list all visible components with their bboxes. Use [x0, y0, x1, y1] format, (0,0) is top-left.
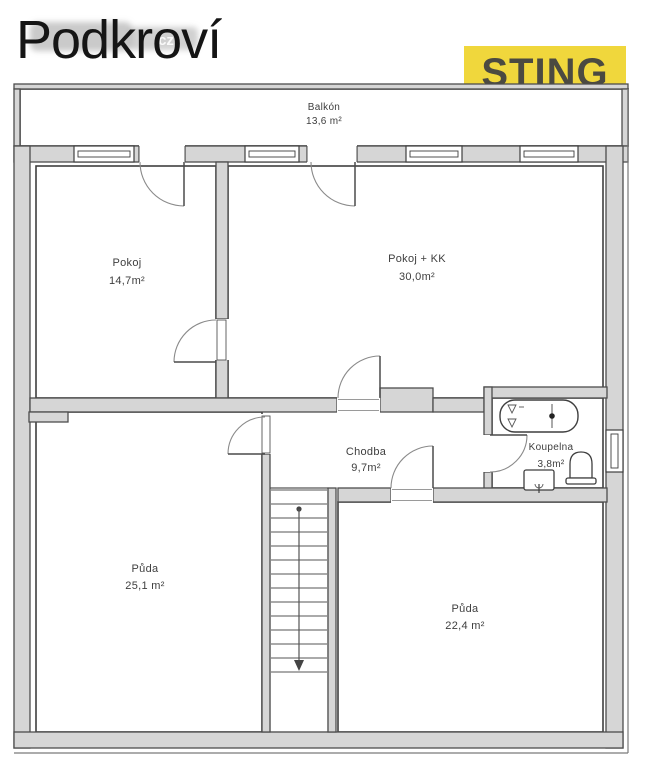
- floorplan-page: cz Podkroví STING: [0, 0, 650, 768]
- page-title: Podkroví: [16, 10, 222, 70]
- label-puda-right-name: Půda: [452, 603, 479, 615]
- wall-pokoj-divider: [216, 162, 228, 319]
- label-puda-left-name: Půda: [132, 563, 159, 575]
- label-pokoj-area: 14,7m²: [109, 275, 145, 287]
- label-balcony-name: Balkón: [308, 102, 340, 113]
- label-puda-right-area: 22,4 m²: [445, 620, 484, 632]
- wall-left: [14, 146, 30, 748]
- wall-bottom: [14, 732, 623, 748]
- wall-balcony-right: [622, 89, 628, 146]
- wall-mid-horizontal: [433, 398, 484, 412]
- door-frame: [262, 416, 270, 453]
- wall-koupelna-left: [484, 387, 492, 435]
- wall-balcony-left: [14, 89, 20, 146]
- wall-koupelna-top: [484, 387, 607, 398]
- opening: [307, 145, 357, 163]
- label-pokoj-name: Pokoj: [112, 257, 141, 269]
- room-puda-right: [338, 502, 603, 732]
- wall-mid-horizontal: [30, 398, 337, 412]
- wall-pokoj-divider: [216, 359, 228, 398]
- window: [520, 146, 578, 162]
- wall-chunk: [380, 388, 433, 412]
- window: [406, 146, 462, 162]
- label-pokoj-kk-area: 30,0m²: [399, 271, 435, 283]
- bathtub-icon: [500, 400, 578, 432]
- door-frame: [217, 320, 226, 360]
- window: [245, 146, 299, 162]
- wall-chodba-bottom: [433, 488, 607, 502]
- window-bathroom: [606, 430, 623, 472]
- wall-stair-left: [262, 454, 270, 732]
- wall-stair-right: [328, 488, 336, 732]
- label-chodba-name: Chodba: [346, 446, 387, 458]
- wall-chodba-bottom: [338, 488, 391, 502]
- label-balcony-area: 13,6 m²: [306, 116, 342, 127]
- label-chodba-area: 9,7m²: [351, 462, 381, 474]
- label-pokoj-kk-name: Pokoj + KK: [388, 253, 446, 265]
- label-puda-left-area: 25,1 m²: [125, 580, 164, 592]
- wall-balcony-top: [14, 84, 628, 89]
- sink-icon: [524, 470, 554, 493]
- window: [74, 146, 134, 162]
- wall-step: [29, 412, 68, 422]
- wall-top: [357, 146, 628, 162]
- opening: [139, 145, 185, 163]
- floorplan-canvas: cz Podkroví STING: [0, 0, 650, 768]
- opening: [483, 435, 493, 472]
- label-koupelna-name: Koupelna: [529, 442, 574, 453]
- label-koupelna-area: 3,8m²: [537, 459, 564, 470]
